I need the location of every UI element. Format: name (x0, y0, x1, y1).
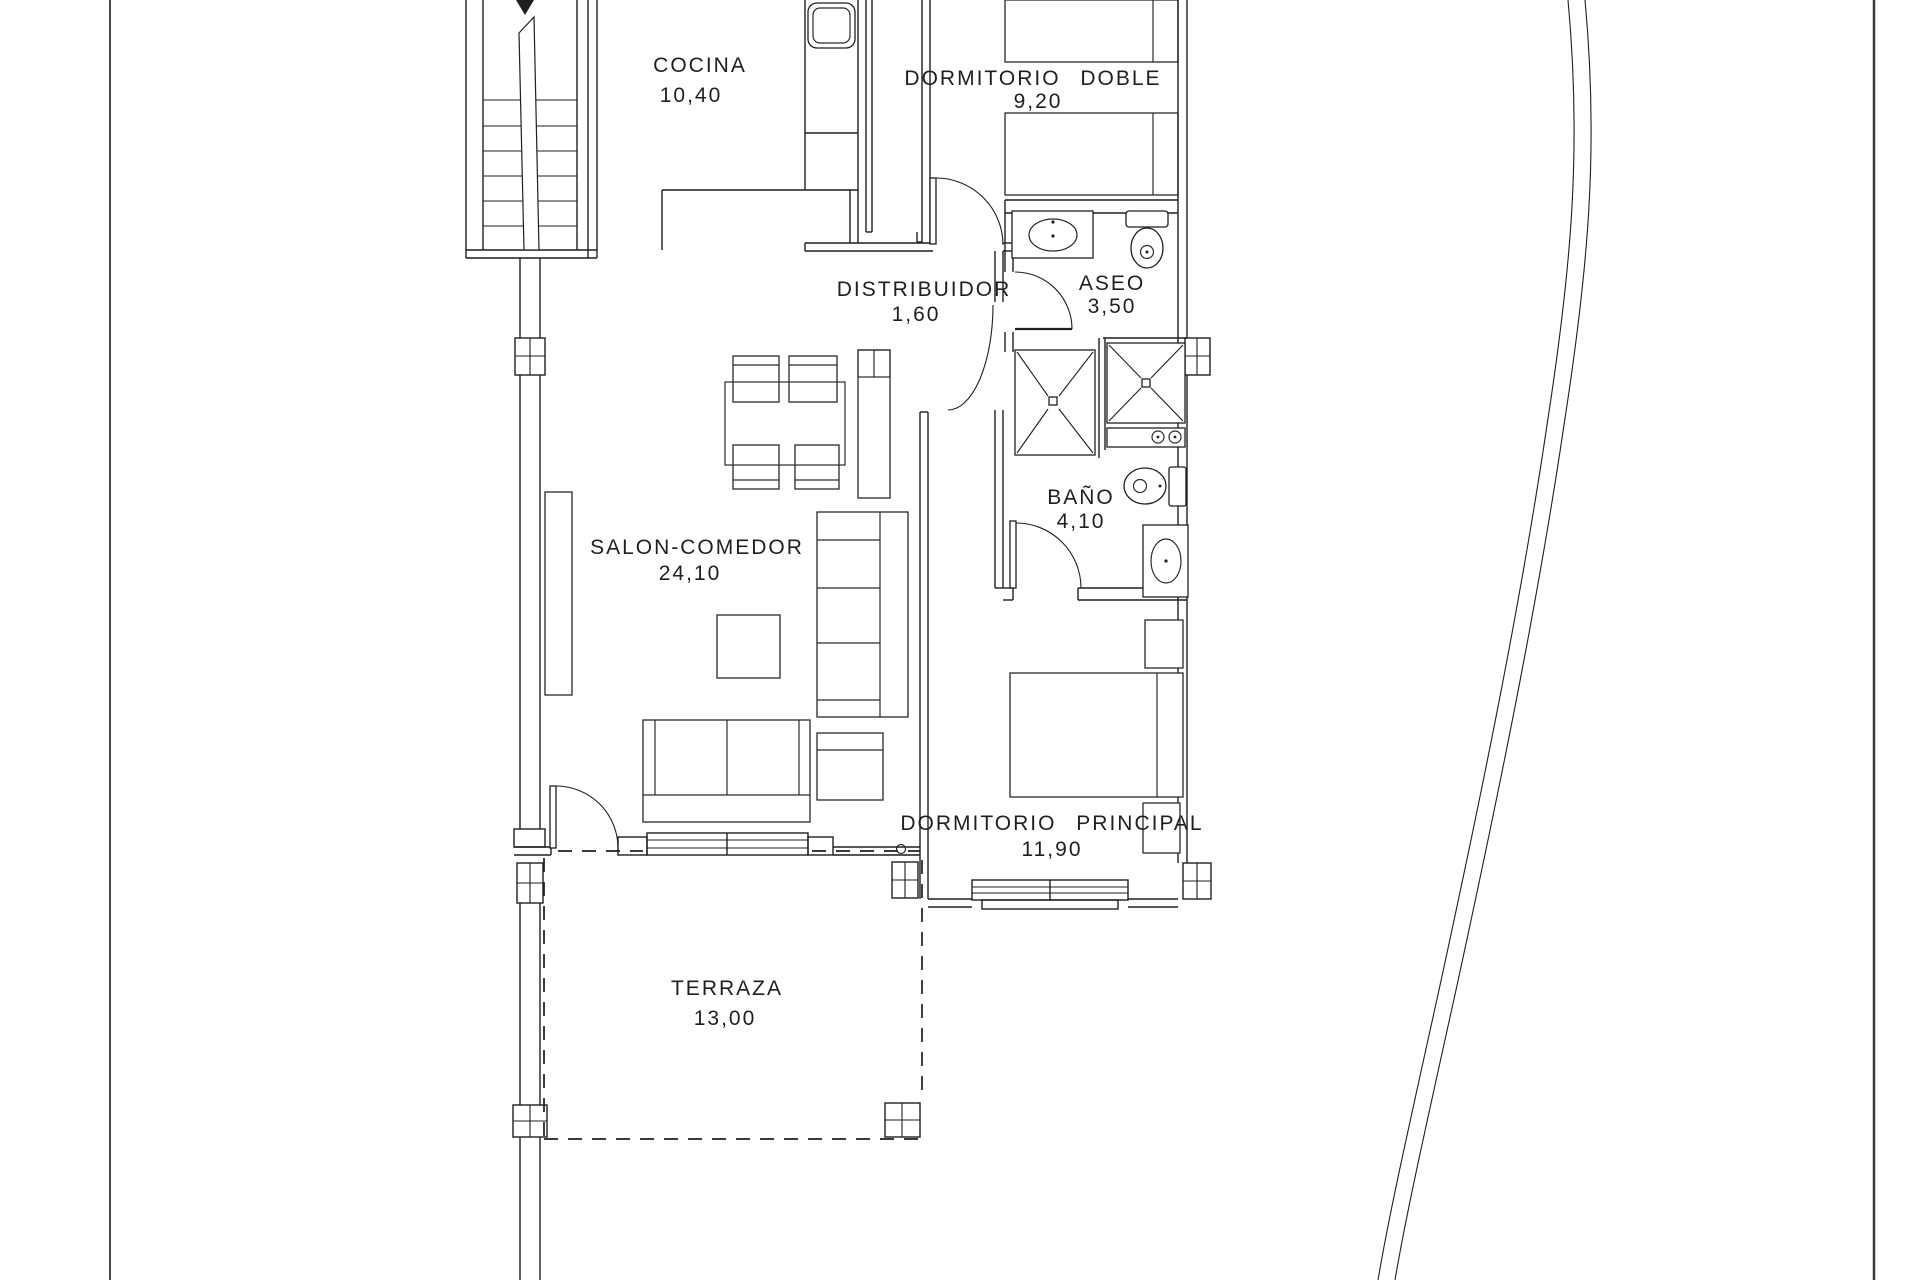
shower-drain (1142, 379, 1150, 387)
single-bed (1005, 113, 1178, 195)
door-leaf (930, 178, 936, 244)
room-label-bano: BAÑO (1047, 485, 1115, 509)
column-symbol (897, 845, 906, 854)
area-label-distribuidor: 1,60 (892, 303, 941, 326)
area-label-salon-comedor: 24,10 (659, 562, 722, 585)
floor-plan-page: COCINA 10,40 DORMITORIO DOBLE 9,20 DISTR… (0, 0, 1920, 1280)
room-label-dormitorio-principal: DORMITORIO PRINCIPAL (900, 812, 1203, 835)
dining-chair (733, 356, 779, 402)
dining-chair (789, 356, 837, 402)
shower-drain (1049, 397, 1057, 405)
toilet-icon (1131, 228, 1163, 268)
area-label-cocina: 10,40 (660, 84, 723, 107)
door-swing-arc (948, 305, 993, 410)
staircase (466, 0, 597, 258)
room-label-terraza: TERRAZA (671, 977, 783, 1000)
tv-sideboard (545, 492, 572, 695)
distribuidor-walls (805, 178, 1013, 251)
window-end-block (618, 837, 647, 855)
window-end-block (808, 837, 833, 855)
room-label-salon-comedor: SALON-COMEDOR (590, 536, 804, 559)
stair-rail (519, 17, 539, 250)
bedside-table (1145, 620, 1183, 668)
door-swing-arc (1015, 272, 1072, 329)
page-borders (110, 0, 1874, 1280)
kitchen (662, 0, 930, 250)
toilet-tank (1169, 467, 1186, 506)
door-leaf (1010, 521, 1016, 588)
room-label-distribuidor: DISTRIBUIDOR (837, 278, 1012, 301)
area-label-bano: 4,10 (1057, 510, 1106, 533)
room-label-aseo: ASEO (1079, 272, 1145, 295)
dormitorio-principal (928, 620, 1183, 909)
area-label-dormitorio-principal: 11,90 (1022, 838, 1083, 861)
floor-plan-svg: COCINA 10,40 DORMITORIO DOBLE 9,20 DISTR… (0, 0, 1920, 1280)
coffee-table (717, 615, 780, 678)
area-label-aseo: 3,50 (1088, 295, 1137, 318)
room-label-dormitorio-doble: DORMITORIO DOBLE (904, 67, 1161, 90)
door-swing-arc (936, 178, 1003, 245)
site-curve-1 (1378, 0, 1574, 1280)
single-bed (1005, 0, 1178, 62)
wall-end-cap (514, 829, 545, 847)
site-curve-2 (1395, 0, 1591, 1280)
left-exterior-wall (513, 258, 547, 1280)
room-label-cocina: COCINA (653, 54, 747, 77)
dining-chair (795, 445, 839, 489)
site-boundary-curve (1378, 0, 1591, 1280)
sofa (817, 512, 908, 717)
door-leaf (550, 786, 556, 848)
area-label-dormitorio-doble: 9,20 (1014, 90, 1063, 113)
door-swing-arc (556, 786, 618, 848)
armchair (817, 733, 883, 800)
dining-chair (733, 445, 779, 489)
salon-comedor-furniture (545, 350, 908, 822)
window-sill (982, 900, 1118, 909)
stair-direction-arrow-icon (516, 0, 534, 15)
area-label-terraza: 13,00 (694, 1007, 757, 1030)
toilet-tank (1126, 211, 1168, 227)
shower-units (1015, 338, 1187, 458)
